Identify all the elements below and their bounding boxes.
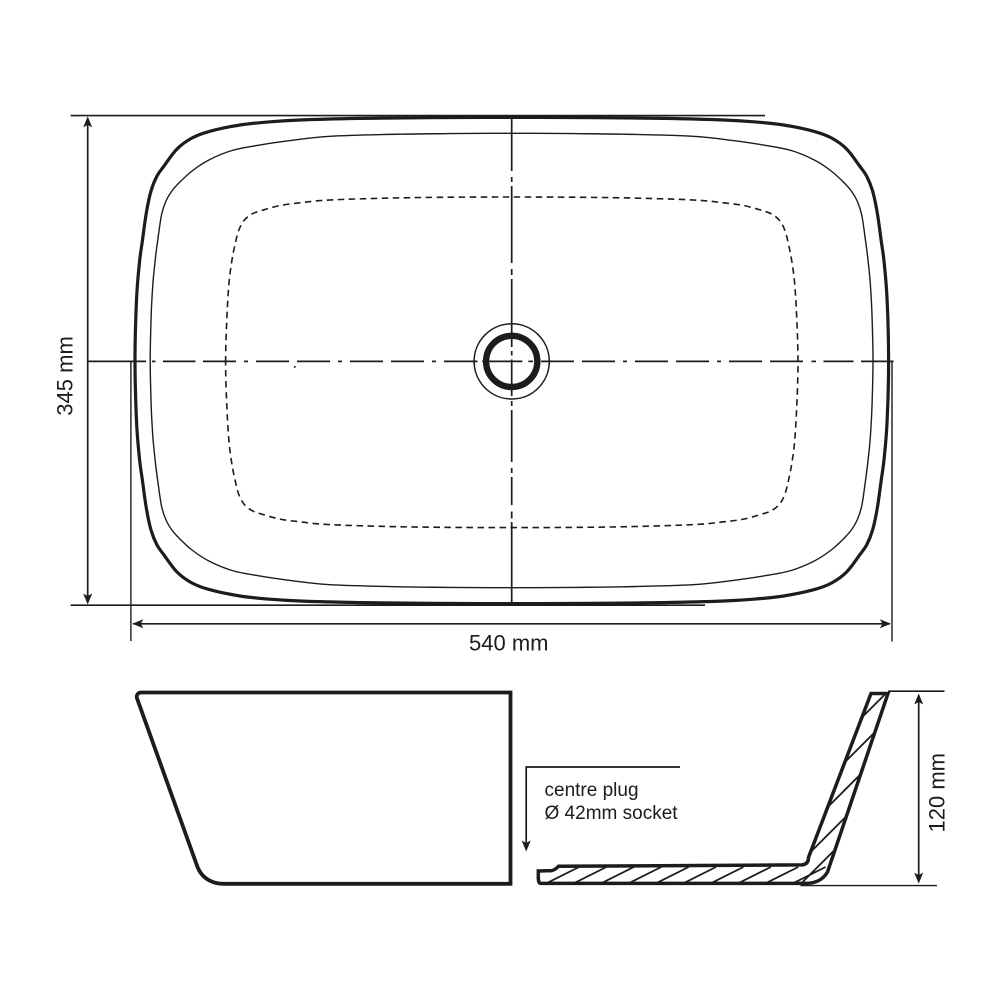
svg-text:Ø 42mm socket: Ø 42mm socket bbox=[545, 803, 679, 824]
svg-text:540 mm: 540 mm bbox=[469, 631, 548, 656]
svg-text:120 mm: 120 mm bbox=[925, 753, 950, 832]
svg-text:345 mm: 345 mm bbox=[53, 336, 78, 415]
svg-text:centre plug: centre plug bbox=[545, 780, 639, 801]
